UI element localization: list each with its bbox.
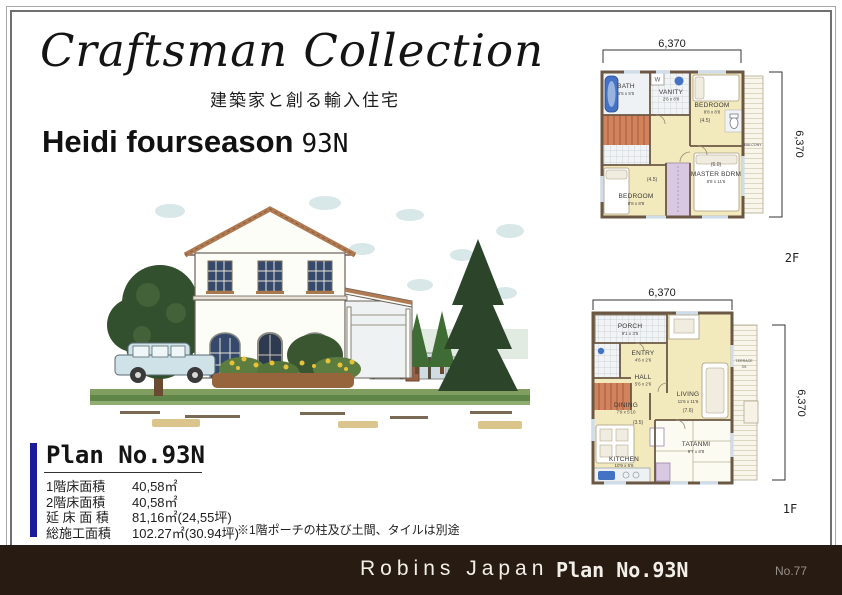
hall-label: HALL xyxy=(634,374,651,381)
area-value: 81,16㎡(24,55坪) xyxy=(132,510,232,526)
footer-bar: Robins Japan Plan No.93N No.77 xyxy=(0,545,842,595)
area-label: 1階床面積 xyxy=(46,479,132,495)
living-label: LIVING xyxy=(677,391,700,398)
porch-size: 9'1 x 3'5 xyxy=(622,331,639,336)
kitchen-counter-1f xyxy=(593,468,650,483)
terrace-step xyxy=(744,401,758,423)
area-label: 延 床 面 積 xyxy=(46,510,132,526)
shoe-corner-1f xyxy=(593,343,620,378)
closet-1f xyxy=(650,428,664,446)
bedroom-a-size: 8'8 x 8'8 xyxy=(704,110,721,115)
area-value: 40,58㎡ xyxy=(132,479,178,495)
footer-company: Robins Japan xyxy=(360,557,548,581)
kitchen-label: KITCHEN xyxy=(609,456,639,463)
model-title: Heidi fourseason93N xyxy=(42,124,348,160)
vanity-size: 2'6 x 8'8 xyxy=(663,97,680,102)
house-illustration xyxy=(90,193,530,433)
dim-top-1f: 6,370 xyxy=(593,287,732,310)
upper-windows xyxy=(206,261,334,294)
area-value: 40,58㎡ xyxy=(132,495,178,511)
master-label: MASTER BDRM xyxy=(691,171,741,178)
area-value: 102.27㎡(30.94坪) xyxy=(132,526,239,542)
model-name: Heidi fourseason xyxy=(42,124,294,159)
bedroom-b-label: BEDROOM xyxy=(619,193,654,200)
bath-label: BATH xyxy=(617,83,635,90)
bedroom-a-mats: (4.5) xyxy=(700,118,711,124)
dim-top-2f: 6,370 xyxy=(603,38,741,63)
porch-label: PORCH xyxy=(618,323,643,330)
entry-size: 4'6 x 2'6 xyxy=(635,358,652,363)
terrace-size: 3'6 xyxy=(742,365,747,369)
area-label: 2階床面積 xyxy=(46,495,132,511)
dim-top-2f-value: 6,370 xyxy=(658,38,686,50)
sink-icon xyxy=(675,77,684,86)
dining-label: DINING xyxy=(614,402,638,409)
bedroom-a-label: BEDROOM xyxy=(695,102,730,109)
stairs-2f xyxy=(602,115,650,165)
kitchen-sink-icon xyxy=(598,471,615,480)
area-row-construction: 総施工面積102.27㎡(30.94坪) xyxy=(46,526,239,542)
plan-box-title: Plan No.93N xyxy=(46,441,205,469)
model-code: 93N xyxy=(302,129,349,159)
area-label: 総施工面積 xyxy=(46,526,132,542)
toilet-2f xyxy=(725,110,743,132)
collection-subtitle: 建築家と創る輸入住宅 xyxy=(150,86,400,111)
floor-label-2f: 2F xyxy=(785,251,799,265)
entry-sink-icon xyxy=(598,348,604,354)
terrace-label: TERRACE xyxy=(735,359,753,363)
kitchen-size: 10'9 x 5'6 xyxy=(615,463,634,468)
footer-plan-number: Plan No.93N xyxy=(556,558,688,582)
hall-size: 5'6 x 2'6 xyxy=(635,382,652,387)
tatami-size: 9'7 x 8'8 xyxy=(688,449,705,454)
area-note: ※1階ポーチの柱及び土間、タイルは別途 xyxy=(237,521,460,538)
closet-2f xyxy=(666,163,690,217)
bedroom-b-mats: (4.5) xyxy=(647,177,658,183)
bath-size: 5'5 x 5'5 xyxy=(618,91,635,96)
vanity-label: VANITY xyxy=(659,89,684,96)
plan-box-underline xyxy=(44,472,202,473)
wc-1f xyxy=(656,463,670,481)
collection-title: Craftsman Collection xyxy=(40,24,544,77)
master-size: 8'8 x 11'6 xyxy=(707,179,726,184)
dining-mats: (3.5) xyxy=(633,420,644,426)
area-row-1f: 1階床面積40,58㎡ xyxy=(46,479,239,495)
dining-size: 7'9 x 5'10 xyxy=(617,410,636,415)
master-mats: (6.0) xyxy=(711,162,722,168)
living-size: 11'6 x 11'6 xyxy=(678,399,699,404)
footer-page-number: No.77 xyxy=(775,564,807,578)
dim-top-1f-value: 6,370 xyxy=(648,287,676,299)
dim-right-2f-value: 6,370 xyxy=(793,130,805,158)
right-conifer xyxy=(438,239,518,391)
plan-box-accent-bar xyxy=(30,443,37,537)
entry-label: ENTRY xyxy=(632,350,655,357)
balcony-label: BALCONY xyxy=(744,143,762,147)
area-row-total-floor: 延 床 面 積81,16㎡(24,55坪) xyxy=(46,510,239,526)
floor-plan-1f: 6,370 xyxy=(586,283,842,523)
washer-label: W xyxy=(655,78,661,84)
brochure-page: Craftsman Collection 建築家と創る輸入住宅 Heidi fo… xyxy=(0,0,842,595)
area-row-2f: 2階床面積40,58㎡ xyxy=(46,495,239,511)
bedroom-b-size: 8'8 x 8'8 xyxy=(628,201,645,206)
living-mats: (7.6) xyxy=(683,408,694,414)
dim-right-1f-value: 6,370 xyxy=(795,389,807,417)
area-table: 1階床面積40,58㎡ 2階床面積40,58㎡ 延 床 面 積81,16㎡(24… xyxy=(46,479,239,541)
floor-label-1f: 1F xyxy=(783,502,797,516)
floor-plan-2f: 6,370 W xyxy=(586,36,842,270)
tatami-label: TATANMI xyxy=(682,441,710,448)
dim-right-2f: 6,370 xyxy=(769,72,805,217)
dim-right-1f: 6,370 xyxy=(772,325,807,480)
